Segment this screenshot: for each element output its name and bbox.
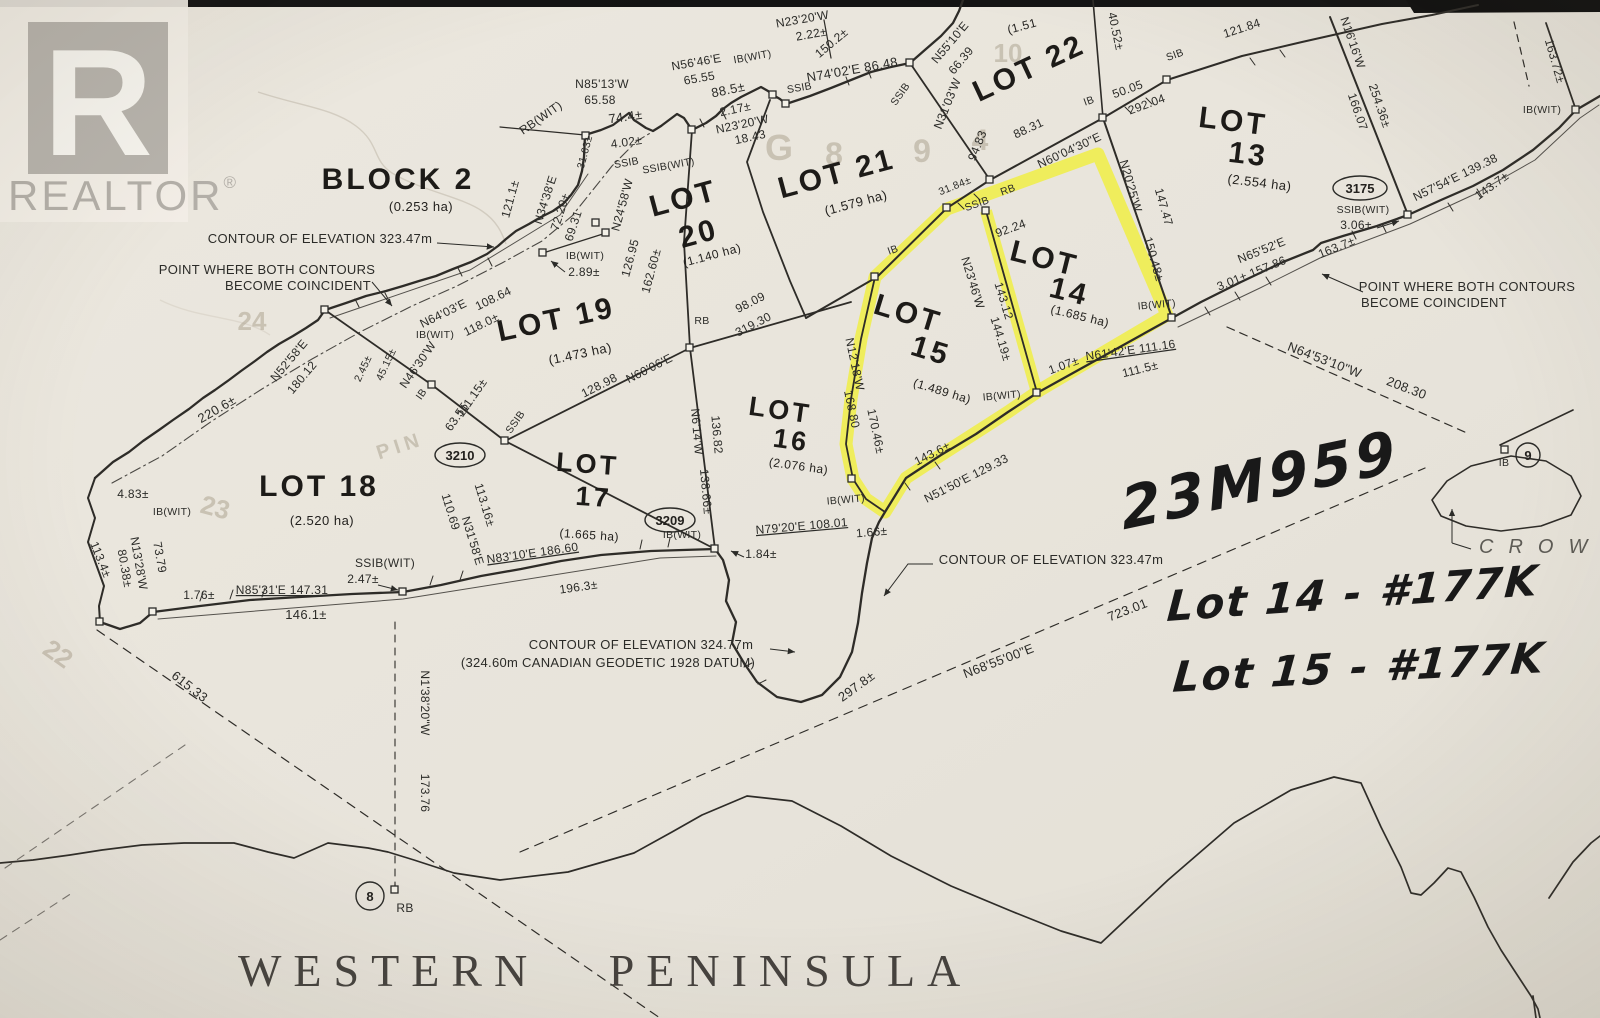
- monument-marker: [711, 545, 718, 552]
- monument-marker: [871, 273, 878, 280]
- monument-marker: [321, 306, 328, 313]
- survey-label: 2.47±: [347, 572, 379, 586]
- monument-marker: [1033, 389, 1040, 396]
- lot-num-16: 16: [771, 423, 811, 458]
- survey-label: IB: [1499, 457, 1510, 469]
- survey-label: 173.76: [418, 774, 432, 813]
- monument-marker: [1163, 76, 1170, 83]
- monument-marker: [391, 886, 398, 893]
- monument-marker: [602, 229, 609, 236]
- survey-label: IB(WIT): [663, 529, 701, 541]
- monument-marker: [1572, 106, 1579, 113]
- ghost-glyph: 24: [238, 306, 267, 336]
- monument-marker: [539, 249, 546, 256]
- region-title: WESTERN PENINSULA: [238, 945, 972, 996]
- survey-label: 1.66±: [855, 524, 888, 541]
- monument-marker: [686, 344, 693, 351]
- monument-id-8: 8: [366, 889, 373, 904]
- survey-plat-map-page: 3210 3209 3175 8 9 G 8 9 4 10 24 23 22 P…: [0, 0, 1600, 1018]
- survey-label: 3.06±: [1340, 218, 1372, 232]
- survey-label: IB(WIT): [566, 250, 604, 262]
- survey-label: CONTOUR OF ELEVATION 323.47m: [939, 552, 1163, 567]
- survey-label: SSIB(WIT): [1337, 204, 1390, 216]
- monument-marker: [906, 59, 913, 66]
- survey-label: N85'13'W: [575, 77, 629, 91]
- survey-label: 1.84±: [745, 547, 777, 561]
- paper-background: [0, 0, 1600, 1018]
- photo-edge-corner: [1406, 0, 1600, 13]
- survey-label: RB: [694, 315, 709, 327]
- survey-label: 65.58: [584, 93, 616, 107]
- realtor-logo-letter: R: [43, 18, 153, 188]
- survey-label: BECOME COINCIDENT: [1361, 295, 1507, 310]
- survey-label: RB: [396, 901, 413, 915]
- monument-marker: [986, 176, 993, 183]
- survey-label: 2.89±: [568, 265, 600, 279]
- survey-label: IB(WIT): [153, 506, 191, 518]
- lot-name-block2: BLOCK 2: [322, 163, 475, 196]
- survey-plat-map: 3210 3209 3175 8 9 G 8 9 4 10 24 23 22 P…: [0, 0, 1600, 1018]
- monument-marker: [688, 126, 695, 133]
- monument-marker: [1404, 211, 1411, 218]
- monument-id-3210: 3210: [446, 448, 475, 463]
- survey-label: BECOME COINCIDENT: [225, 278, 371, 293]
- crow-water-label: CROW: [1479, 536, 1600, 558]
- survey-label: SSIB(WIT): [355, 556, 415, 570]
- lot-num-13: 13: [1227, 136, 1270, 174]
- survey-label: POINT WHERE BOTH CONTOURS: [1359, 279, 1576, 294]
- survey-label: 4.83±: [117, 487, 149, 501]
- monument-marker: [428, 381, 435, 388]
- realtor-wordmark: REALTOR®: [8, 172, 239, 219]
- monument-marker: [149, 608, 156, 615]
- monument-marker: [782, 100, 789, 107]
- monument-marker: [501, 437, 508, 444]
- photo-edge-top: [0, 0, 1600, 7]
- survey-label: N1'38'20"W: [418, 670, 432, 736]
- survey-label: CONTOUR OF ELEVATION 324.77m: [529, 637, 753, 652]
- lot-area-18: (2.520 ha): [290, 513, 354, 528]
- survey-label: N85'31'E 147.31: [236, 583, 329, 597]
- monument-marker: [399, 588, 406, 595]
- monument-id-3209: 3209: [656, 513, 685, 528]
- lot-num-17: 17: [575, 481, 613, 513]
- monument-marker: [848, 475, 855, 482]
- survey-label: IB(WIT): [1523, 104, 1561, 116]
- monument-marker: [943, 204, 950, 211]
- survey-label: CONTOUR OF ELEVATION 323.47m: [208, 231, 432, 246]
- monument-marker: [769, 91, 776, 98]
- monument-marker: [1168, 314, 1175, 321]
- monument-marker: [592, 219, 599, 226]
- ghost-glyph: 9: [913, 133, 931, 169]
- monument-marker: [96, 618, 103, 625]
- monument-id-3175: 3175: [1346, 181, 1375, 196]
- monument-marker: [1099, 114, 1106, 121]
- survey-label: POINT WHERE BOTH CONTOURS: [159, 262, 376, 277]
- survey-label: 1.76±: [183, 588, 215, 602]
- lot-area-block2: (0.253 ha): [389, 199, 453, 214]
- survey-label: (324.60m CANADIAN GEODETIC 1928 DATUM): [461, 655, 755, 670]
- survey-label: IB(WIT): [416, 329, 454, 341]
- lot-name-18: LOT 18: [259, 470, 379, 503]
- monument-id-9: 9: [1524, 448, 1531, 463]
- lot-name-17: LOT: [555, 447, 620, 481]
- monument-marker: [1501, 446, 1508, 453]
- survey-label: 146.1±: [285, 607, 326, 622]
- ghost-glyph: G: [765, 127, 793, 168]
